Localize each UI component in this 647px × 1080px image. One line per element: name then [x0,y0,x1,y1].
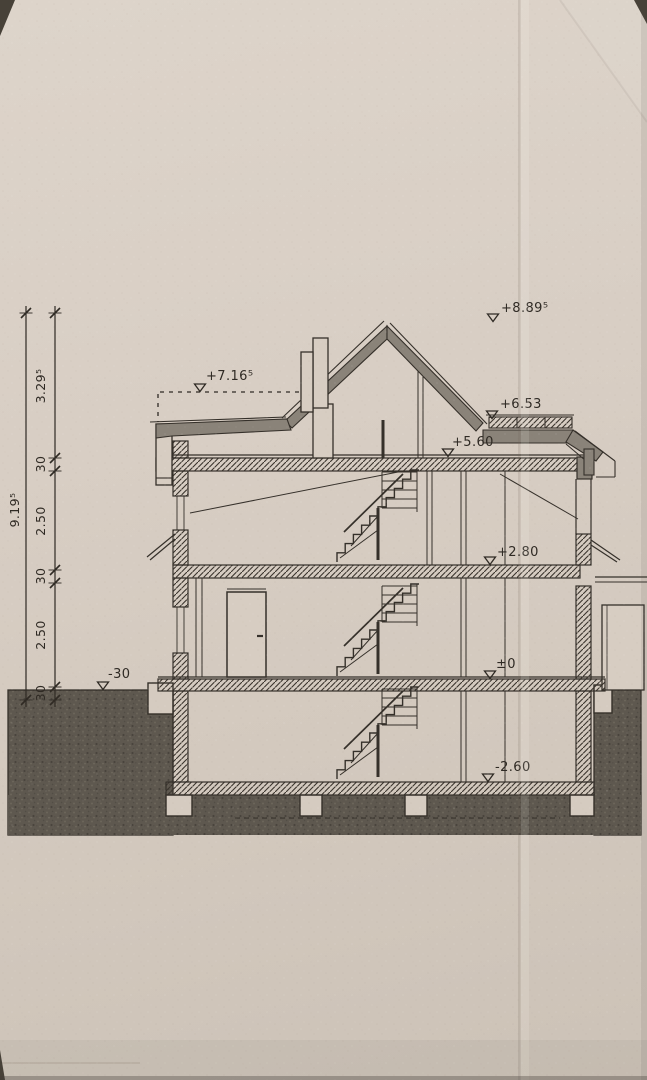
section-drawing-svg: 9.19⁵ 3.29⁵ 30 2.50 30 2.50 30 +8.89⁵ +7… [0,0,647,1080]
paper-grain [0,0,647,1080]
scanned-section-drawing: 9.19⁵ 3.29⁵ 30 2.50 30 2.50 30 +8.89⁵ +7… [0,0,647,1080]
